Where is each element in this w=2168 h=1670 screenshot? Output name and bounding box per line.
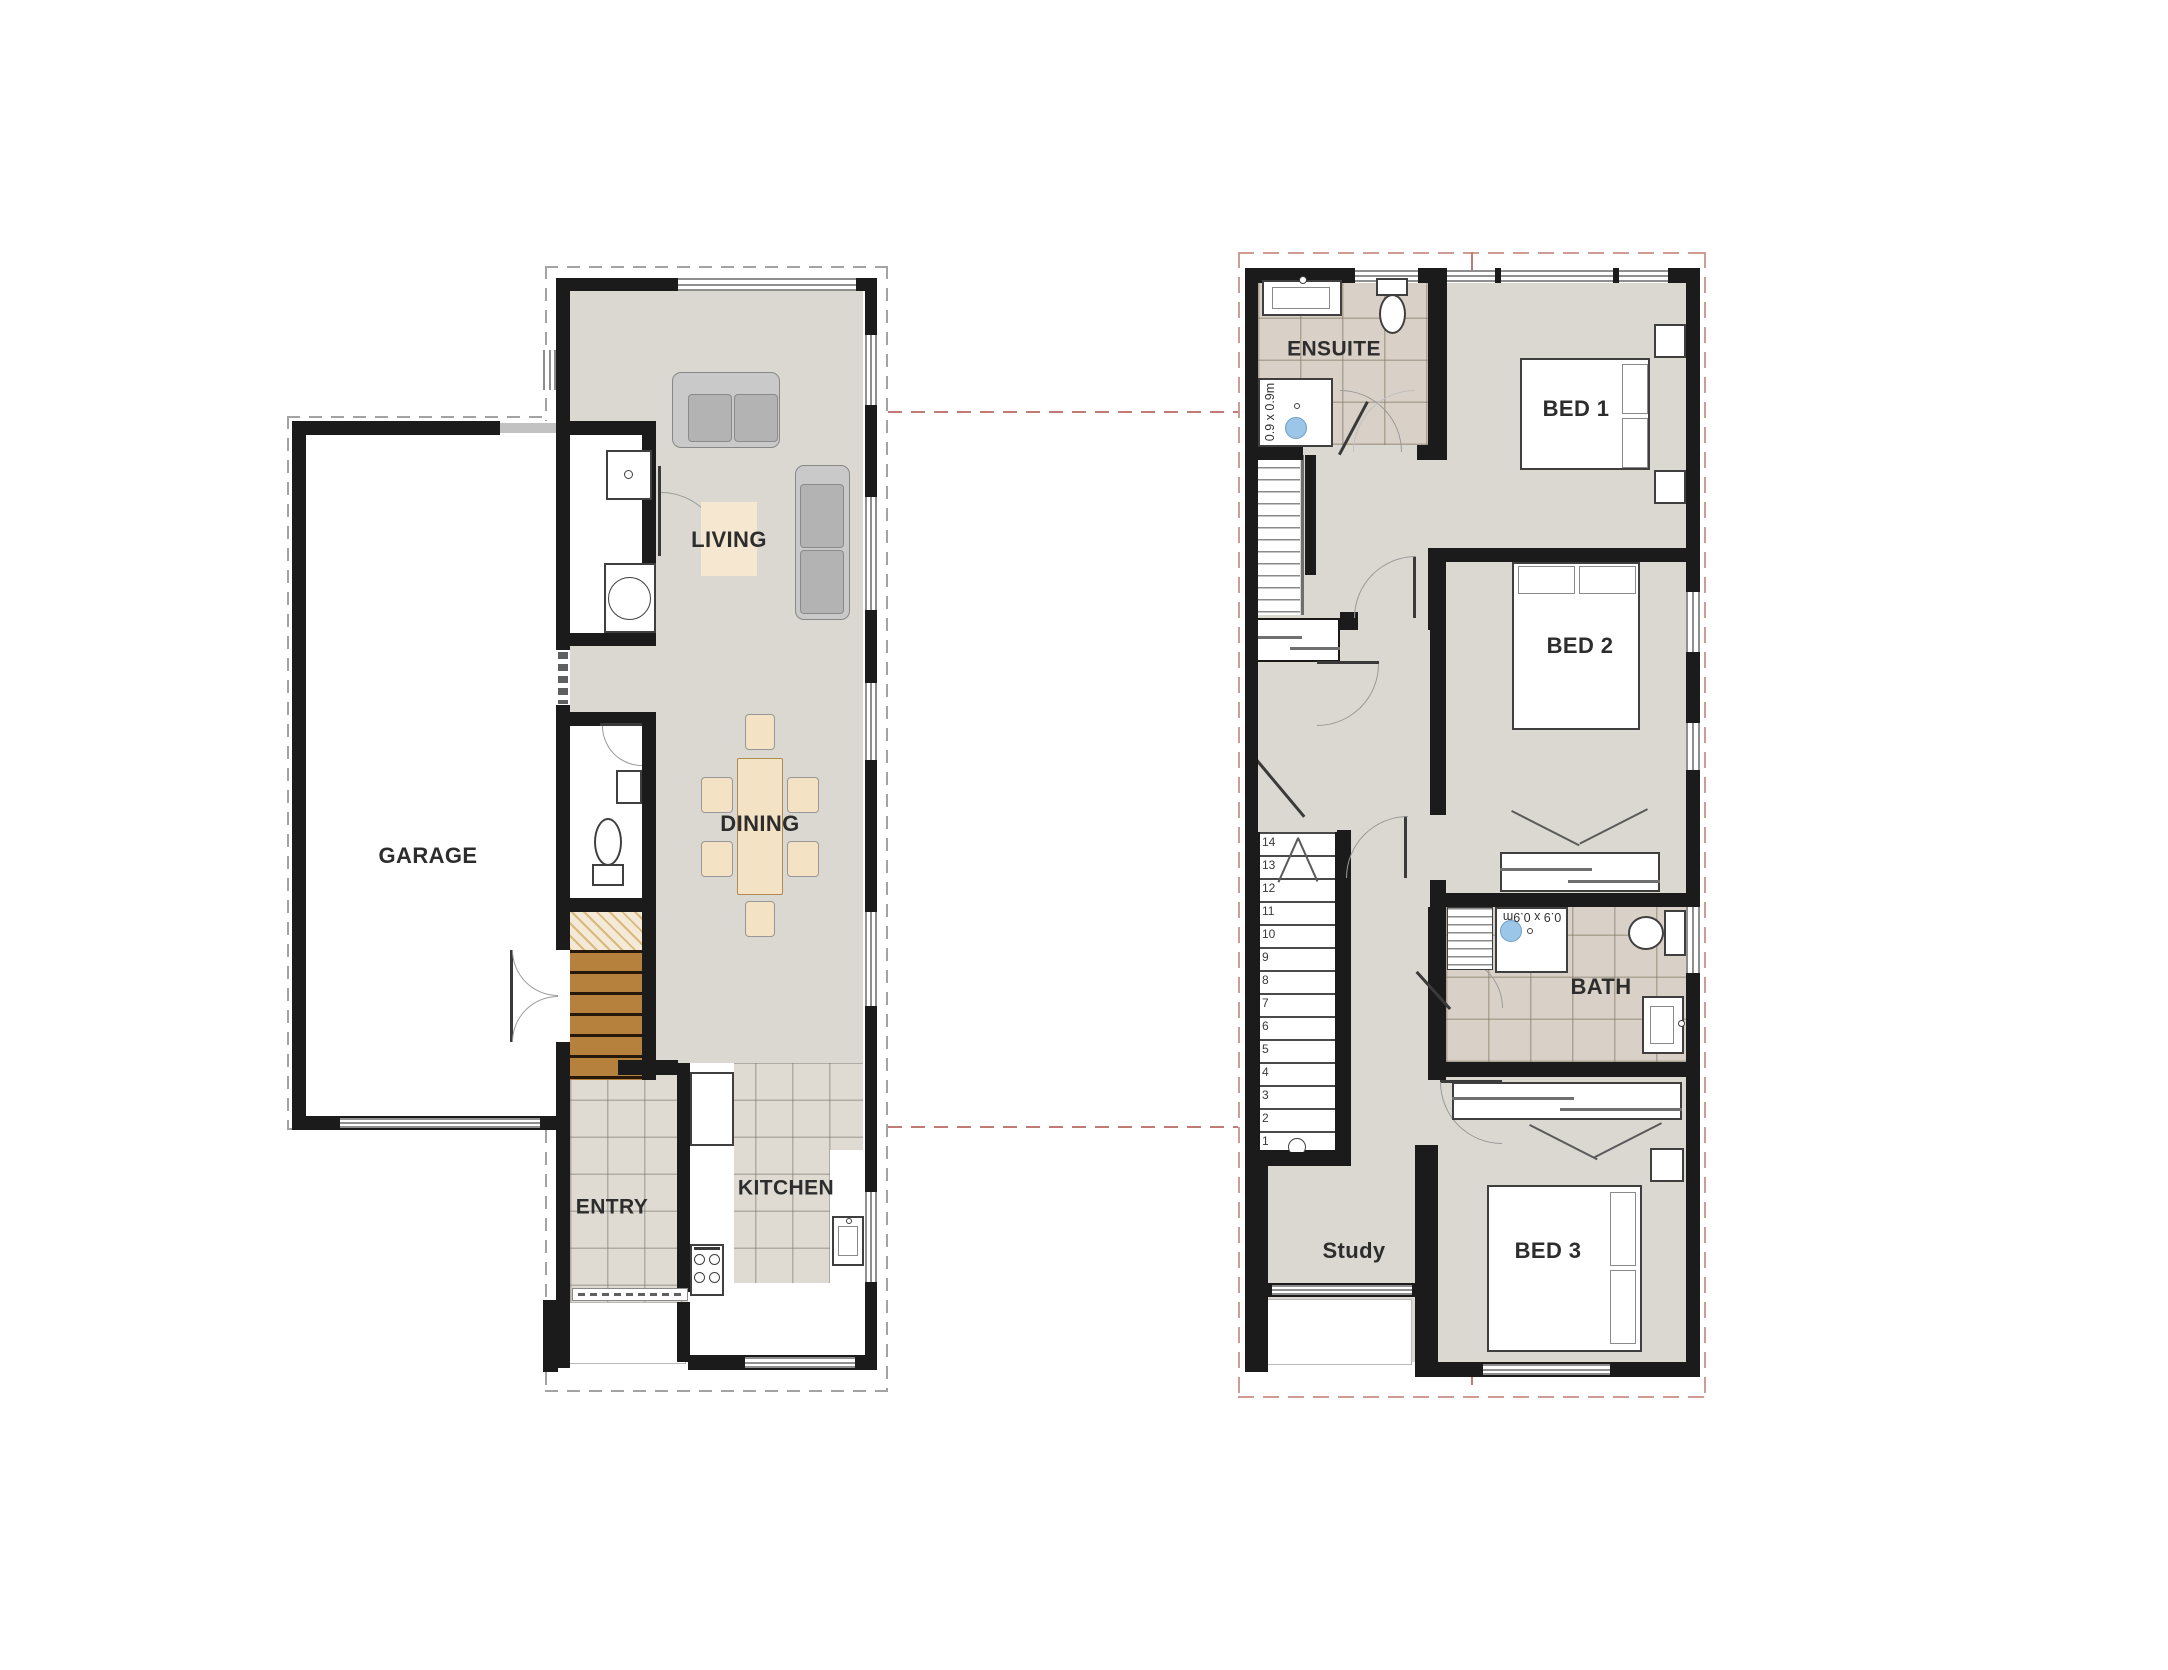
dining-chair: [787, 777, 819, 813]
dining-chair: [745, 714, 775, 750]
bath-tap: [1678, 1020, 1685, 1027]
wall-segment: [556, 1042, 570, 1368]
bath-shower-size-label: 0.9 x 0.9m: [1503, 910, 1561, 924]
window: [745, 1357, 855, 1368]
window: [1686, 592, 1700, 652]
sliding-door-symbol: [558, 652, 568, 704]
kitchen-tap: [846, 1218, 852, 1224]
ensuite-shower-size-label: 0.9 x 0.9m: [1263, 383, 1277, 441]
stair-step-number: 7: [1262, 997, 1269, 1009]
entry-room-label: ENTRY: [576, 1197, 648, 1218]
wall-segment: [1305, 455, 1316, 575]
bed3-nightstand: [1650, 1148, 1684, 1182]
front-sliding-door: [578, 1293, 682, 1296]
dining-chair: [701, 777, 733, 813]
window: [1447, 270, 1668, 282]
cooktop-burner: [694, 1272, 705, 1283]
wall-segment: [642, 912, 656, 1080]
wall-segment: [1413, 1283, 1438, 1297]
window: [865, 683, 877, 760]
ensuite-tap: [1299, 276, 1307, 284]
dining-chair: [745, 901, 775, 937]
window: [1272, 1285, 1412, 1295]
wall-segment: [1337, 830, 1351, 1160]
bed3-room-label: BED 3: [1515, 1240, 1582, 1262]
bed1-nightstand: [1654, 324, 1686, 358]
alignment-tie-line: [888, 411, 1238, 413]
wall-segment: [1686, 268, 1700, 1377]
wall-segment: [556, 278, 678, 291]
wall-segment: [1258, 1152, 1351, 1166]
wall-segment: [677, 1063, 690, 1292]
bed1-pillow: [1622, 418, 1648, 468]
stair-step-number: 12: [1262, 882, 1275, 894]
stair-step-number: 3: [1262, 1089, 1269, 1101]
window: [543, 350, 556, 390]
bath-room-label: BATH: [1570, 976, 1631, 998]
window: [865, 912, 877, 1006]
window-mullion: [1613, 268, 1619, 283]
dining-chair: [701, 841, 733, 877]
bed1-room-label: BED 1: [1543, 398, 1610, 420]
wall-segment: [1430, 630, 1446, 815]
wc-basin: [616, 770, 642, 804]
bed3-pillow: [1610, 1192, 1636, 1266]
ensuite-shower-drain: [1294, 403, 1300, 409]
bath-toilet-bowl: [1628, 916, 1664, 950]
window: [1686, 723, 1700, 770]
stair-handrail: [1301, 455, 1304, 615]
stair-step-numbers: 1413121110987654321: [1258, 832, 1337, 1154]
floor-plan-canvas: GARAGE LIVING DINING ENTRY KITCHEN ENSUI…: [0, 0, 2168, 1670]
window: [865, 1192, 877, 1282]
setout-line: [545, 266, 888, 268]
garage-setout-line: [287, 416, 547, 418]
kitchen-room-label: KITCHEN: [738, 1178, 834, 1199]
wall-segment: [1415, 1145, 1438, 1362]
fridge: [690, 1072, 734, 1146]
kitchen-sink-bowl: [838, 1226, 858, 1256]
sofa-cushion: [734, 394, 778, 442]
ensuite-basin: [1272, 287, 1330, 309]
stair-step-number: 5: [1262, 1043, 1269, 1055]
washing-machine-drum: [608, 577, 651, 620]
bath-cistern: [1664, 910, 1686, 956]
stair-step-number: 10: [1262, 928, 1275, 940]
garage-setout-line: [287, 416, 289, 1130]
wall-segment: [1446, 893, 1700, 907]
cooktop-burner: [709, 1272, 720, 1283]
stair-step-number: 9: [1262, 951, 1269, 963]
alignment-tie-line: [888, 1126, 1238, 1128]
stair-step-number: 2: [1262, 1112, 1269, 1124]
entry-porch: [560, 1302, 686, 1364]
stair-upper-hatch: [570, 912, 642, 950]
stair-step-number: 6: [1262, 1020, 1269, 1032]
wall-segment: [1418, 268, 1447, 283]
bed2-wardrobe-slide: [1568, 880, 1660, 883]
wall-segment: [1245, 268, 1258, 1160]
bed3-wardrobe-slide: [1452, 1097, 1574, 1100]
window: [865, 497, 877, 610]
wc-cistern: [592, 864, 624, 886]
sofa-cushion: [800, 550, 844, 614]
bed3-pillow: [1610, 1270, 1636, 1344]
wall-segment: [570, 898, 656, 912]
boundary-line: [1704, 252, 1706, 1398]
wall-segment: [1245, 445, 1303, 460]
living-room-label: LIVING: [691, 529, 767, 551]
wall-segment: [1417, 445, 1447, 460]
ensuite-room-label: ENSUITE: [1287, 339, 1381, 360]
bed2-wardrobe-slide: [1500, 868, 1592, 871]
lower-roof-deck: [1266, 1299, 1412, 1365]
garage-door-swing: [512, 996, 558, 1042]
window-mullion: [1495, 268, 1501, 283]
setout-line: [545, 266, 547, 421]
cooktop: [690, 1244, 724, 1296]
stair-step-number: 8: [1262, 974, 1269, 986]
ensuite-toilet-bowl: [1379, 294, 1406, 334]
ensuite-shower-rose: [1285, 417, 1307, 439]
wall-segment: [543, 1300, 558, 1372]
bed1-pillow: [1622, 364, 1648, 414]
garage-highlight-window: [500, 423, 556, 433]
bed2-pillow: [1518, 566, 1575, 594]
bed2-pillow: [1579, 566, 1636, 594]
wall-segment: [1428, 283, 1447, 445]
wc-toilet-bowl: [594, 818, 622, 866]
garage-wall: [292, 421, 306, 1130]
cooktop-controls: [694, 1247, 720, 1250]
plan-geometry: [0, 0, 2168, 1670]
dining-room-label: DINING: [720, 813, 799, 835]
setout-line: [545, 1390, 888, 1392]
window: [1483, 1364, 1610, 1375]
stair-step-number: 13: [1262, 859, 1275, 871]
stair-void-flight: [1258, 455, 1300, 615]
stair-step-number: 4: [1262, 1066, 1269, 1078]
bath-basin: [1650, 1006, 1674, 1044]
wall-segment: [1245, 1160, 1268, 1372]
wall-segment: [556, 278, 570, 950]
linen-slide-door: [1290, 647, 1340, 650]
window: [678, 278, 856, 291]
wall-segment: [570, 633, 656, 646]
linen-cupboard: [1252, 618, 1340, 662]
setout-line: [886, 266, 888, 1392]
wall-segment: [1428, 548, 1446, 630]
window: [340, 1118, 540, 1128]
stair-step-number: 14: [1262, 836, 1275, 848]
dining-chair: [787, 841, 819, 877]
laundry-tub-drain: [624, 470, 633, 479]
wall-segment: [1430, 880, 1446, 907]
sofa-cushion: [688, 394, 732, 442]
boundary-line: [1238, 252, 1240, 1398]
garage-door-swing: [512, 950, 558, 996]
bath-shower-drain: [1527, 928, 1533, 934]
wall-segment: [642, 712, 656, 912]
linen-slide-door: [1252, 636, 1302, 639]
sofa-cushion: [800, 484, 844, 548]
window: [1686, 903, 1700, 973]
bath-linen-steps: [1447, 907, 1493, 970]
stair-step-number: 1: [1262, 1135, 1269, 1147]
garage-room-label: GARAGE: [379, 845, 478, 867]
bed2-room-label: BED 2: [1547, 635, 1614, 657]
wall-segment: [677, 1302, 690, 1362]
wall-segment: [1428, 1062, 1700, 1077]
wall-segment: [1428, 548, 1700, 562]
study-room-label: Study: [1322, 1240, 1385, 1262]
bed3-wardrobe: [1452, 1082, 1682, 1120]
bed1-nightstand: [1654, 470, 1686, 504]
bed2-wardrobe: [1500, 852, 1660, 892]
garage-wall: [292, 421, 500, 435]
cooktop-burner: [694, 1254, 705, 1265]
cooktop-burner: [709, 1254, 720, 1265]
bed3-wardrobe-slide: [1560, 1108, 1682, 1111]
window: [865, 335, 877, 405]
stair-step-number: 11: [1262, 905, 1274, 917]
